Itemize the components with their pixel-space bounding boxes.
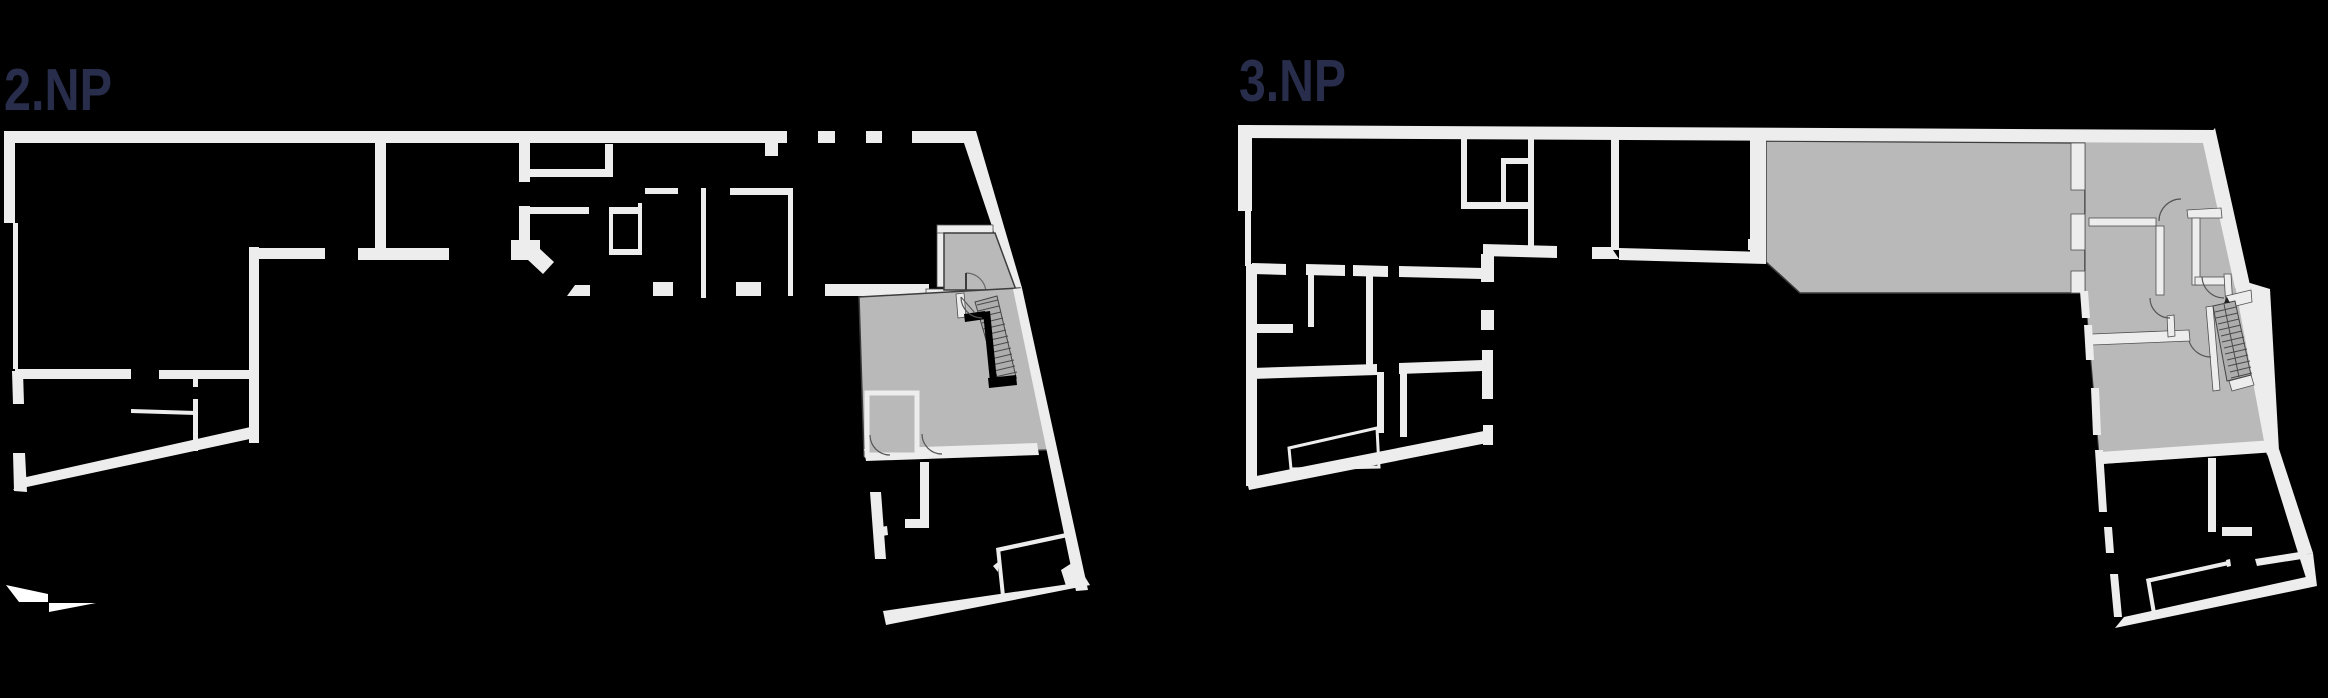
svg-text:3.NP: 3.NP bbox=[1239, 48, 1346, 114]
svg-text:2.NP: 2.NP bbox=[4, 57, 112, 123]
